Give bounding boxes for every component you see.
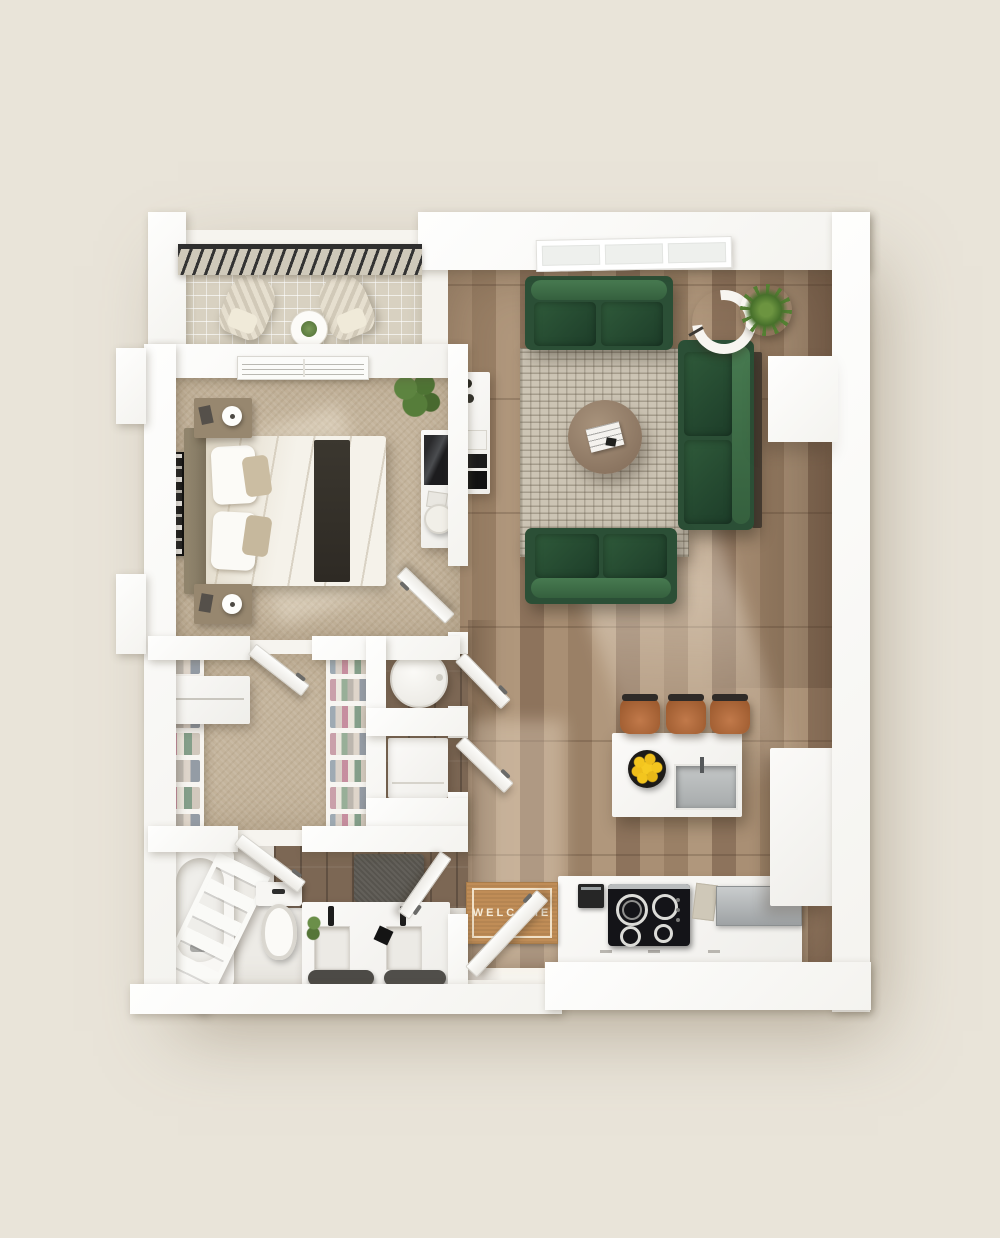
bedroom-vent bbox=[237, 356, 369, 380]
floor-plan-canvas: WELCOME bbox=[0, 0, 1000, 1238]
window-pane bbox=[668, 242, 726, 263]
balcony-railing bbox=[178, 244, 422, 275]
vanity bbox=[302, 902, 450, 990]
nightstand-top bbox=[194, 398, 252, 438]
sofa-bottom bbox=[525, 528, 677, 604]
cutting-board bbox=[692, 883, 718, 921]
wall-column bbox=[768, 356, 838, 442]
wall-pilaster-top bbox=[116, 348, 146, 424]
pantry-cabinet bbox=[770, 748, 834, 906]
kitchen-island bbox=[612, 733, 742, 817]
headboard bbox=[184, 428, 208, 594]
wall-bath-top-b bbox=[302, 826, 468, 852]
bar-stool bbox=[710, 698, 750, 734]
island-faucet bbox=[700, 757, 704, 773]
black-faucet bbox=[328, 906, 334, 926]
window-pane bbox=[605, 243, 663, 264]
bed-runner bbox=[314, 440, 350, 582]
bed bbox=[206, 436, 386, 586]
tv bbox=[424, 435, 449, 485]
balcony-table bbox=[290, 310, 328, 348]
living-room-plant bbox=[740, 284, 792, 336]
coffee-table bbox=[568, 400, 642, 474]
window-pane bbox=[542, 245, 600, 266]
wall-hall-5 bbox=[448, 914, 468, 990]
nightstand-bottom bbox=[194, 584, 252, 624]
wall-bed-closet-a bbox=[148, 636, 250, 660]
wall-bed-closet-b bbox=[312, 636, 460, 660]
wall-nook-mid bbox=[366, 708, 468, 736]
wall-pilaster-bottom bbox=[116, 574, 146, 654]
wall-hall-1 bbox=[448, 344, 468, 566]
sofa-top bbox=[525, 276, 673, 350]
lemon-bowl bbox=[628, 750, 666, 788]
island-sink bbox=[674, 764, 738, 810]
wall-nook-low bbox=[366, 798, 468, 828]
balcony-plant bbox=[301, 321, 317, 337]
wall-left bbox=[144, 344, 176, 990]
vanity-plant bbox=[306, 914, 322, 944]
accent-pillow bbox=[241, 514, 272, 557]
toilet bbox=[256, 882, 302, 962]
accent-pillow bbox=[241, 454, 272, 497]
sofa-right bbox=[678, 340, 754, 530]
bar-stool bbox=[666, 698, 706, 734]
coffee-machine bbox=[578, 884, 604, 908]
living-windows bbox=[536, 236, 733, 272]
cooktop bbox=[608, 884, 690, 946]
magazine bbox=[586, 421, 625, 453]
bar-stool bbox=[620, 698, 660, 734]
flush-button bbox=[272, 889, 285, 894]
wall-bath-top-a bbox=[148, 826, 238, 852]
wall-bottom-right bbox=[545, 962, 871, 1010]
wall-balcony-left bbox=[148, 212, 186, 348]
magazine-item bbox=[605, 437, 616, 447]
cabinet-appliance bbox=[388, 738, 448, 798]
wall-bottom-left bbox=[130, 984, 562, 1014]
wall-right bbox=[832, 212, 870, 1012]
